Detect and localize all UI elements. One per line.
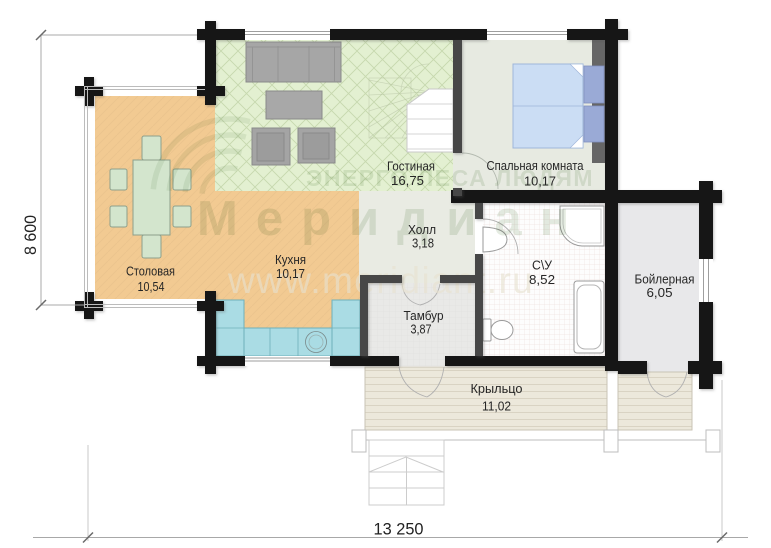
- svg-text:8 600: 8 600: [21, 215, 40, 255]
- svg-text:3,18: 3,18: [412, 236, 434, 251]
- svg-text:3,87: 3,87: [411, 322, 432, 337]
- svg-text:8,52: 8,52: [529, 272, 555, 287]
- svg-text:10,54: 10,54: [138, 279, 165, 294]
- svg-text:Крыльцо: Крыльцо: [471, 381, 523, 396]
- svg-text:С\У: С\У: [532, 258, 553, 273]
- svg-text:6,05: 6,05: [647, 285, 673, 300]
- svg-text:Гостиная: Гостиная: [387, 159, 435, 174]
- svg-text:11,02: 11,02: [482, 399, 511, 414]
- svg-text:10,17: 10,17: [276, 266, 305, 281]
- svg-text:Кухня: Кухня: [275, 252, 306, 267]
- svg-text:10,17: 10,17: [524, 174, 556, 189]
- svg-text:Спальная комната: Спальная комната: [487, 158, 585, 173]
- svg-text:Столовая: Столовая: [126, 264, 175, 279]
- svg-text:13 250: 13 250: [374, 520, 424, 539]
- svg-text:16,75: 16,75: [391, 173, 424, 188]
